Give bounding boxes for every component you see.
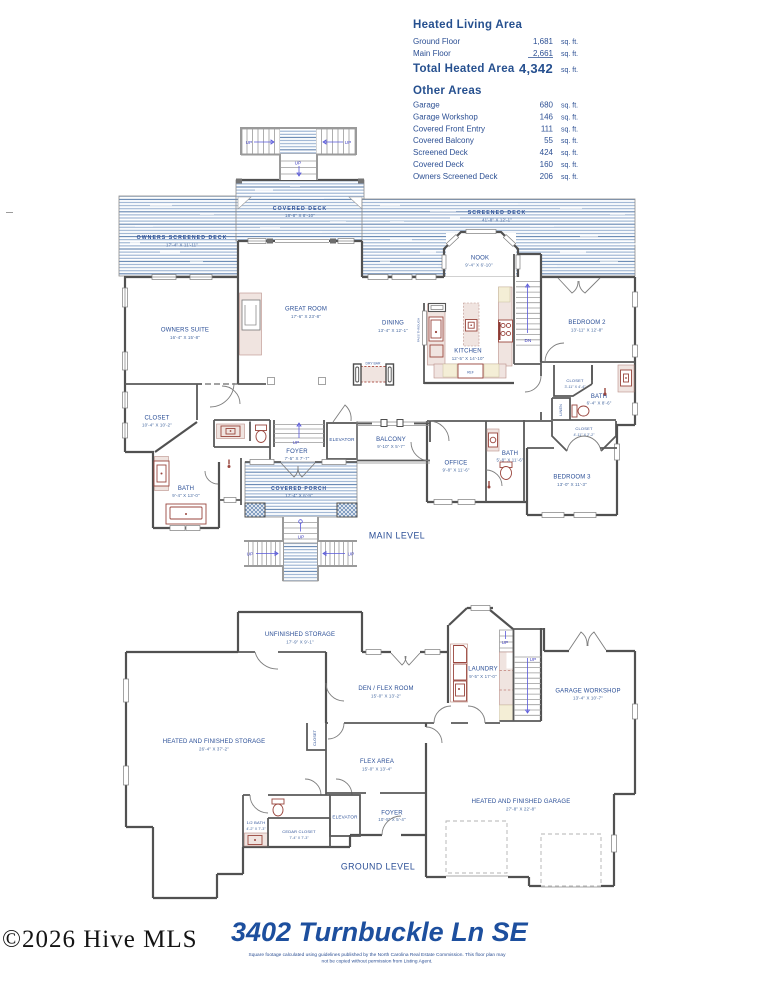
svg-text:ELEVATOR: ELEVATOR bbox=[332, 815, 358, 820]
svg-text:CLOSET: CLOSET bbox=[575, 426, 593, 431]
svg-text:REF: REF bbox=[467, 371, 474, 375]
svg-text:13'-4" X 10'-7": 13'-4" X 10'-7" bbox=[573, 696, 603, 701]
svg-text:15'-0" X 13'-2": 15'-0" X 13'-2" bbox=[371, 694, 401, 699]
svg-text:680: 680 bbox=[540, 101, 554, 110]
svg-text:BEDROOM 2: BEDROOM 2 bbox=[568, 320, 606, 326]
svg-text:Owners Screened Deck: Owners Screened Deck bbox=[413, 172, 498, 181]
svg-text:41'-8" X 12'-1": 41'-8" X 12'-1" bbox=[482, 218, 512, 223]
svg-text:BATH: BATH bbox=[502, 451, 518, 457]
svg-text:CLOSET: CLOSET bbox=[312, 729, 317, 746]
svg-text:OWNERS SUITE: OWNERS SUITE bbox=[161, 328, 209, 334]
svg-text:BALCONY: BALCONY bbox=[376, 437, 406, 443]
svg-text:UP: UP bbox=[502, 640, 509, 645]
svg-text:2,661: 2,661 bbox=[533, 49, 554, 58]
svg-text:BATH: BATH bbox=[178, 486, 194, 492]
svg-text:13'-11" X 12'-8": 13'-11" X 12'-8" bbox=[571, 328, 604, 333]
svg-text:27'-8" X 22'-8": 27'-8" X 22'-8" bbox=[506, 807, 536, 812]
svg-text:UP: UP bbox=[530, 657, 537, 662]
svg-text:13'-4" X 12'-1": 13'-4" X 12'-1" bbox=[378, 328, 408, 333]
svg-text:FOYER: FOYER bbox=[286, 449, 308, 455]
svg-text:9'-10" X 5'-7": 9'-10" X 5'-7" bbox=[377, 444, 405, 449]
svg-text:©2026 Hive MLS: ©2026 Hive MLS bbox=[2, 926, 198, 953]
svg-text:DN: DN bbox=[524, 338, 531, 343]
svg-text:Covered Front Entry: Covered Front Entry bbox=[413, 124, 485, 133]
svg-text:17'-4" X 6'-9": 17'-4" X 6'-9" bbox=[285, 493, 313, 498]
svg-text:7'-5" X 7'-7": 7'-5" X 7'-7" bbox=[285, 456, 310, 461]
svg-text:KITCHEN: KITCHEN bbox=[454, 349, 481, 355]
svg-text:16'-4" X 15'-8": 16'-4" X 15'-8" bbox=[170, 335, 200, 340]
svg-text:424: 424 bbox=[540, 148, 554, 157]
svg-text:UP: UP bbox=[345, 140, 352, 145]
svg-text:160: 160 bbox=[540, 160, 554, 169]
svg-text:Other Areas: Other Areas bbox=[413, 85, 482, 97]
svg-text:UP: UP bbox=[293, 440, 300, 445]
svg-text:1/2 BATH: 1/2 BATH bbox=[247, 820, 266, 825]
svg-text:9'-8" X 11'-6": 9'-8" X 11'-6" bbox=[442, 468, 469, 473]
svg-text:MAIN LEVEL: MAIN LEVEL bbox=[369, 531, 425, 541]
svg-text:9'-4" X 13'-0": 9'-4" X 13'-0" bbox=[172, 493, 200, 498]
svg-text:SCREENED DECK: SCREENED DECK bbox=[468, 210, 527, 216]
svg-text:ELEVATOR: ELEVATOR bbox=[329, 437, 355, 442]
svg-text:sq. ft.: sq. ft. bbox=[561, 39, 578, 46]
svg-text:UP: UP bbox=[298, 535, 305, 540]
svg-text:sq. ft.: sq. ft. bbox=[561, 150, 578, 157]
svg-text:sq. ft.: sq. ft. bbox=[561, 51, 578, 58]
svg-text:LAUNDRY: LAUNDRY bbox=[468, 667, 498, 673]
svg-text:CEDAR CLOSET: CEDAR CLOSET bbox=[282, 829, 316, 834]
svg-text:146: 146 bbox=[540, 112, 554, 121]
svg-text:9'-5" X 17'-0": 9'-5" X 17'-0" bbox=[469, 674, 497, 679]
svg-text:GROUND LEVEL: GROUND LEVEL bbox=[341, 862, 415, 872]
svg-text:55: 55 bbox=[544, 136, 553, 145]
svg-text:sq. ft.: sq. ft. bbox=[561, 126, 578, 133]
svg-text:15'-0" X 13'-4": 15'-0" X 13'-4" bbox=[362, 767, 392, 772]
svg-text:HEATED AND FINISHED STORAGE: HEATED AND FINISHED STORAGE bbox=[163, 739, 266, 745]
svg-text:UP: UP bbox=[295, 161, 302, 166]
svg-text:206: 206 bbox=[540, 172, 554, 181]
svg-text:Covered Balcony: Covered Balcony bbox=[413, 136, 474, 145]
svg-text:DINING: DINING bbox=[382, 321, 404, 327]
svg-text:GARAGE WORKSHOP: GARAGE WORKSHOP bbox=[555, 689, 620, 695]
svg-text:18'-8" X 8'-10": 18'-8" X 8'-10" bbox=[285, 213, 315, 218]
svg-text:10'-4" X 10'-2": 10'-4" X 10'-2" bbox=[142, 423, 172, 428]
svg-text:7'-4" X 7'-3": 7'-4" X 7'-3" bbox=[289, 836, 309, 840]
svg-text:CLOSET: CLOSET bbox=[566, 378, 584, 383]
svg-text:13'-0" X 11'-3": 13'-0" X 11'-3" bbox=[557, 482, 587, 487]
svg-text:HEATED AND FINISHED GARAGE: HEATED AND FINISHED GARAGE bbox=[472, 799, 571, 805]
svg-text:111: 111 bbox=[541, 124, 554, 133]
svg-text:not be copied without permissi: not be copied without permission from Li… bbox=[322, 959, 433, 965]
svg-text:Garage Workshop: Garage Workshop bbox=[413, 112, 478, 121]
svg-text:PASS THROUGH: PASS THROUGH bbox=[417, 318, 421, 342]
svg-text:UNFINISHED STORAGE: UNFINISHED STORAGE bbox=[265, 632, 335, 638]
svg-text:sq. ft.: sq. ft. bbox=[561, 67, 578, 74]
svg-text:26'-4" X 37'-2": 26'-4" X 37'-2" bbox=[199, 747, 229, 752]
svg-text:1,681: 1,681 bbox=[533, 37, 554, 46]
svg-text:OWNERS SCREENED DECK: OWNERS SCREENED DECK bbox=[137, 235, 228, 241]
svg-text:6'-4" X 8'-6": 6'-4" X 8'-6" bbox=[587, 401, 612, 406]
svg-text:4'-11" X 2'-2": 4'-11" X 2'-2" bbox=[574, 433, 596, 437]
svg-text:COVERED DECK: COVERED DECK bbox=[273, 206, 327, 212]
svg-text:LINEN: LINEN bbox=[558, 404, 563, 416]
svg-text:DEN / FLEX ROOM: DEN / FLEX ROOM bbox=[358, 686, 413, 692]
svg-text:4,342: 4,342 bbox=[519, 61, 553, 76]
svg-text:4'-2" X 7'-3": 4'-2" X 7'-3" bbox=[246, 827, 266, 831]
svg-text:3'-11" X 4'-4": 3'-11" X 4'-4" bbox=[565, 385, 587, 389]
svg-text:UP: UP bbox=[247, 552, 254, 557]
svg-text:OFFICE: OFFICE bbox=[445, 461, 468, 467]
svg-text:Ground Floor: Ground Floor bbox=[413, 37, 460, 46]
svg-text:17'-9" X 9'-1": 17'-9" X 9'-1" bbox=[286, 640, 314, 645]
svg-text:Heated Living Area: Heated Living Area bbox=[413, 19, 522, 31]
svg-text:Covered Deck: Covered Deck bbox=[413, 160, 465, 169]
svg-text:DRY BAR: DRY BAR bbox=[366, 362, 382, 366]
svg-text:sq. ft.: sq. ft. bbox=[561, 103, 578, 110]
svg-text:Garage: Garage bbox=[413, 101, 440, 110]
svg-text:17'-6" X 23'-8": 17'-6" X 23'-8" bbox=[291, 314, 321, 319]
svg-text:CLOSET: CLOSET bbox=[145, 416, 170, 422]
svg-text:Total Heated Area: Total Heated Area bbox=[413, 63, 515, 75]
svg-text:COVERED PORCH: COVERED PORCH bbox=[271, 486, 327, 492]
svg-text:sq. ft.: sq. ft. bbox=[561, 174, 578, 181]
svg-text:Screened Deck: Screened Deck bbox=[413, 148, 469, 157]
svg-text:12'-5" X 14'-10": 12'-5" X 14'-10" bbox=[452, 356, 485, 361]
svg-text:sq. ft.: sq. ft. bbox=[561, 138, 578, 145]
svg-text:sq. ft.: sq. ft. bbox=[561, 114, 578, 121]
svg-text:Main Floor: Main Floor bbox=[413, 49, 451, 58]
svg-text:BEDROOM 3: BEDROOM 3 bbox=[553, 475, 591, 481]
svg-text:FLEX AREA: FLEX AREA bbox=[360, 759, 394, 765]
svg-text:UP: UP bbox=[246, 140, 253, 145]
svg-text:Square footage calculated usin: Square footage calculated using guidelin… bbox=[249, 952, 507, 958]
svg-text:UP: UP bbox=[348, 552, 355, 557]
svg-text:3402 Turnbuckle Ln SE: 3402 Turnbuckle Ln SE bbox=[231, 917, 529, 947]
svg-text:sq. ft.: sq. ft. bbox=[561, 162, 578, 169]
svg-text:GREAT ROOM: GREAT ROOM bbox=[285, 307, 327, 313]
